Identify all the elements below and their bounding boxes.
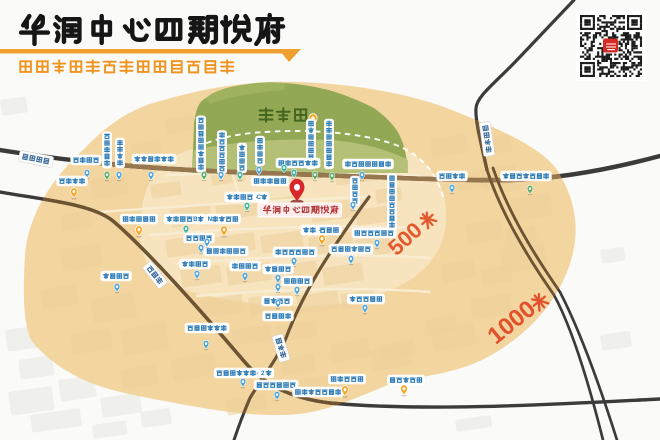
svg-text:-: - — [257, 370, 259, 377]
svg-text:C: C — [257, 194, 262, 201]
svg-text:N: N — [208, 216, 213, 223]
svg-text:B: B — [193, 216, 198, 223]
svg-text:2: 2 — [261, 370, 265, 377]
